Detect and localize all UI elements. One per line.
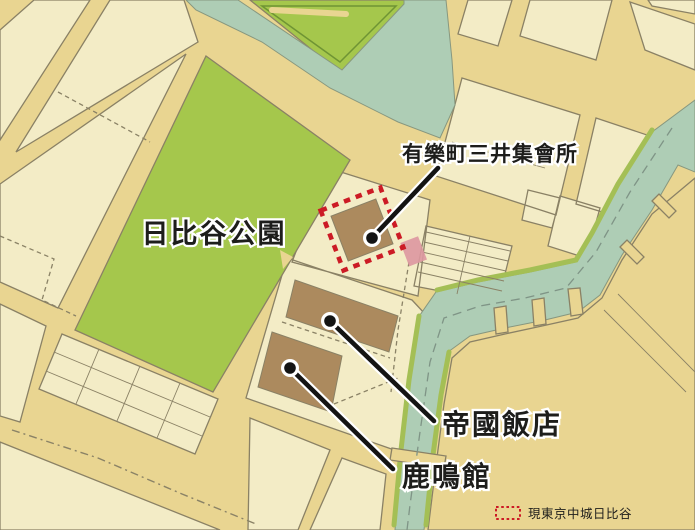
historical-hibiya-map: 日比谷公園 有樂町三井集會所 帝國飯店 鹿鳴館 現東京中城日比谷 bbox=[0, 0, 695, 530]
legend-label: 現東京中城日比谷 bbox=[528, 506, 632, 521]
mitsui-hall-label: 有樂町三井集會所 bbox=[402, 142, 578, 166]
map-canvas: 日比谷公園 有樂町三井集會所 帝國飯店 鹿鳴館 現東京中城日比谷 bbox=[0, 0, 695, 530]
rokumeikan-label: 鹿鳴館 bbox=[402, 460, 492, 493]
callout-dot-mitsui bbox=[366, 232, 378, 244]
palace-garden-path bbox=[272, 10, 346, 14]
callout-dot-imperial-hotel bbox=[324, 315, 336, 327]
imperial-hotel-label: 帝國飯店 bbox=[442, 408, 562, 441]
park-label: 日比谷公園 bbox=[142, 219, 287, 250]
callout-dot-rokumeikan bbox=[284, 362, 296, 374]
